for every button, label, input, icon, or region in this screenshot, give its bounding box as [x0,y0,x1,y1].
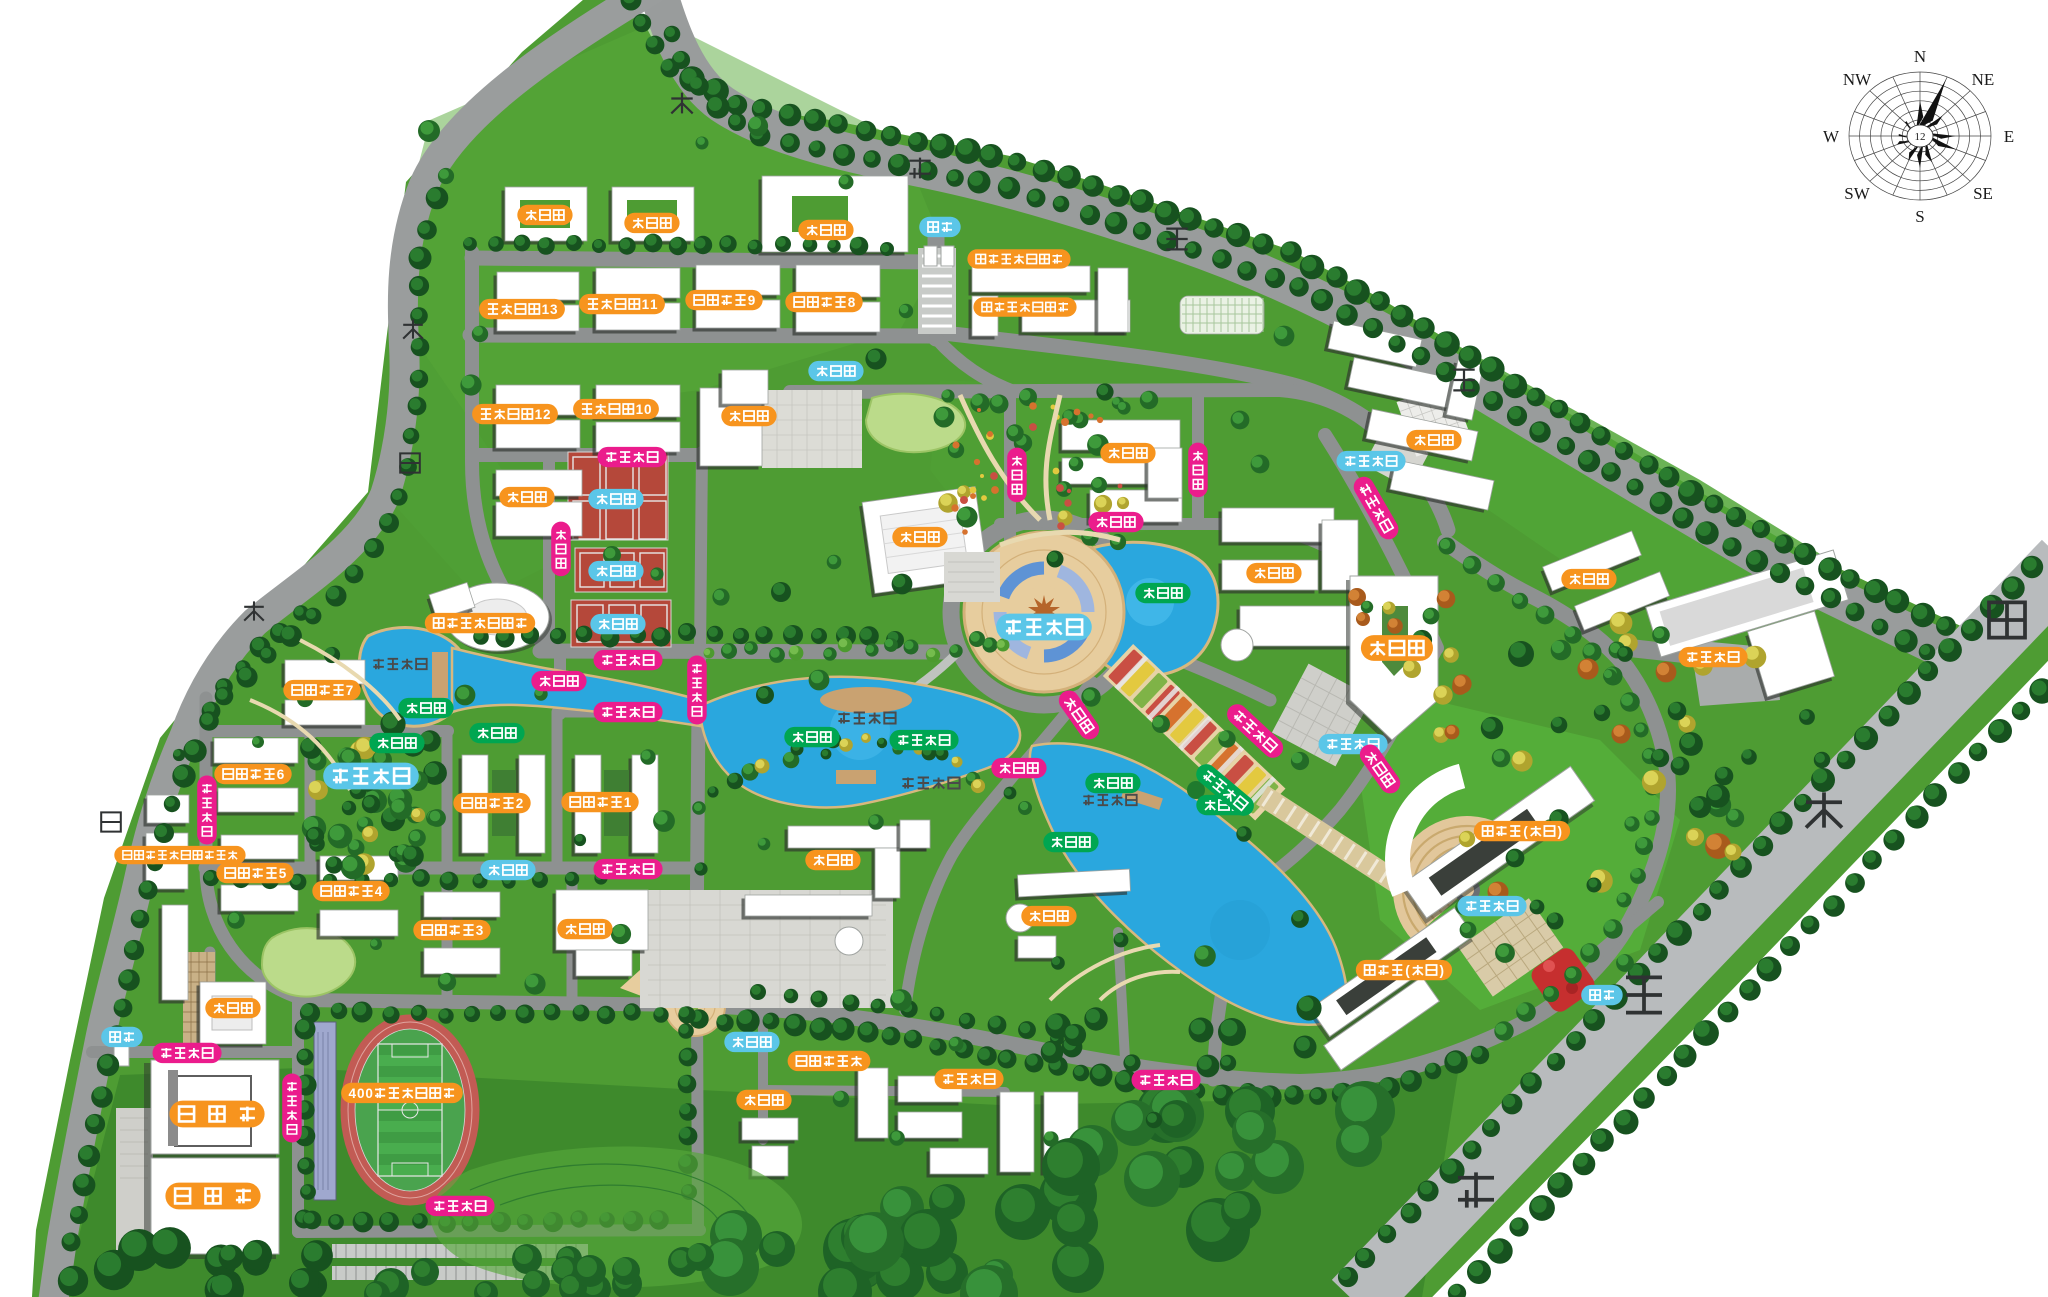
svg-text:5: 5 [279,866,287,881]
svg-text:SW: SW [1844,184,1870,203]
svg-text:1: 1 [650,297,658,312]
svg-text:0: 0 [644,402,652,417]
svg-text:1: 1 [624,795,632,810]
svg-text:9: 9 [748,293,756,308]
svg-text:E: E [2004,127,2014,146]
svg-text:S: S [1915,207,1924,226]
svg-text:NW: NW [1843,70,1872,89]
svg-text:NE: NE [1972,70,1995,89]
svg-text:(: ( [1405,963,1410,978]
svg-text:): ) [1558,824,1563,839]
svg-text:12: 12 [1915,131,1926,143]
svg-text:SE: SE [1973,184,1993,203]
svg-text:(: ( [1523,824,1528,839]
svg-text:3: 3 [550,302,558,317]
svg-text:W: W [1823,127,1840,146]
svg-text:1: 1 [636,402,644,417]
svg-text:): ) [1440,963,1445,978]
svg-text:N: N [1914,47,1926,66]
svg-text:4: 4 [349,1086,357,1101]
svg-text:8: 8 [848,295,856,310]
svg-text:6: 6 [277,767,285,782]
svg-text:3: 3 [476,923,484,938]
svg-text:0: 0 [357,1086,365,1101]
svg-text:2: 2 [516,796,524,811]
svg-text:1: 1 [642,297,650,312]
svg-text:4: 4 [375,884,383,899]
svg-text:7: 7 [346,683,354,698]
svg-text:1: 1 [542,302,550,317]
svg-text:2: 2 [543,407,551,422]
svg-text:0: 0 [365,1086,373,1101]
svg-text:1: 1 [535,407,543,422]
